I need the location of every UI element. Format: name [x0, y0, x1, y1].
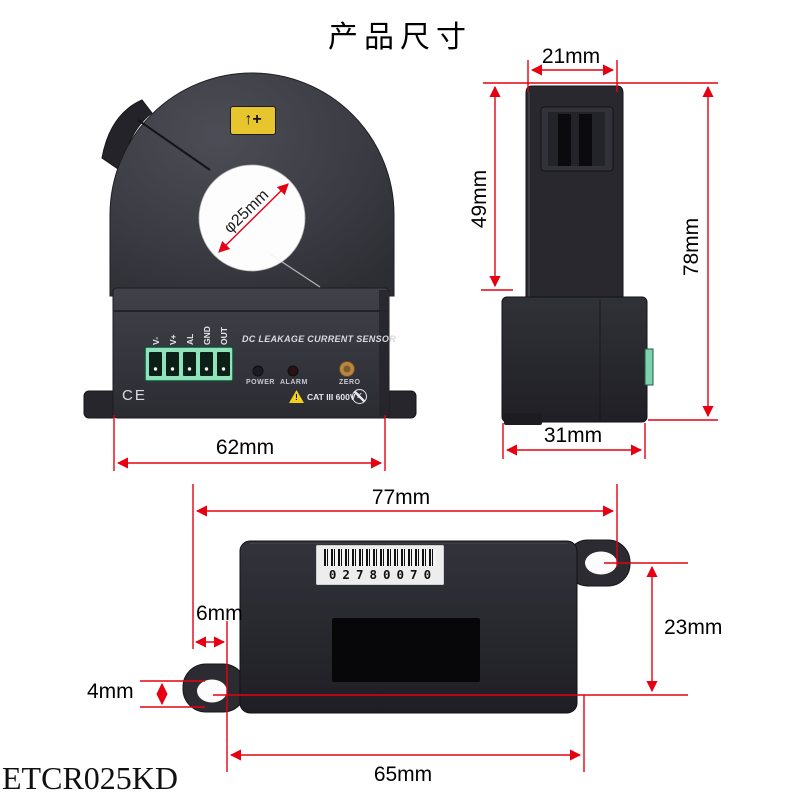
terminal-label-out: OUT: [219, 327, 229, 345]
ce-mark: CE: [122, 387, 147, 404]
power-label: POWER: [246, 379, 275, 386]
zero-label: ZERO: [339, 379, 360, 386]
dimension-65mm: 65mm: [374, 763, 432, 787]
barcode-number: 02780070: [316, 567, 444, 582]
dimension-23mm: 23mm: [664, 616, 722, 640]
no-isolation-icon: K: [352, 389, 367, 404]
terminal-label-v-plus: V+: [168, 334, 178, 345]
polarity-label: ↑+: [230, 106, 276, 135]
dimension-4mm: 4mm: [87, 680, 134, 704]
panel-title: DC LEAKAGE CURRENT SENSOR: [242, 334, 396, 344]
alarm-label: ALARM: [280, 379, 308, 386]
barcode-icon: [324, 549, 436, 566]
dimension-21mm: 21mm: [542, 45, 600, 69]
dimension-6mm: 6mm: [196, 602, 243, 626]
terminal-label-al: AL: [185, 334, 195, 345]
rating-label: CAT III 600V: [307, 392, 356, 402]
dimension-31mm: 31mm: [544, 424, 602, 448]
terminal-label-v-minus: V-: [151, 337, 161, 345]
terminal-label-gnd: GND: [202, 326, 212, 345]
dimension-62mm: 62mm: [216, 436, 274, 460]
page-title: 产品尺寸: [328, 12, 472, 56]
dimension-49mm: 49mm: [468, 170, 492, 228]
product-dimensions-diagram: 产品尺寸 ↑+ φ25mm V- V+ AL GND OUT DC LEAKAG…: [0, 0, 800, 800]
dimension-77mm: 77mm: [372, 486, 430, 510]
model-label: ETCR025KD: [2, 760, 178, 797]
barcode-label: 02780070: [316, 545, 444, 585]
dimension-78mm: 78mm: [680, 218, 704, 276]
